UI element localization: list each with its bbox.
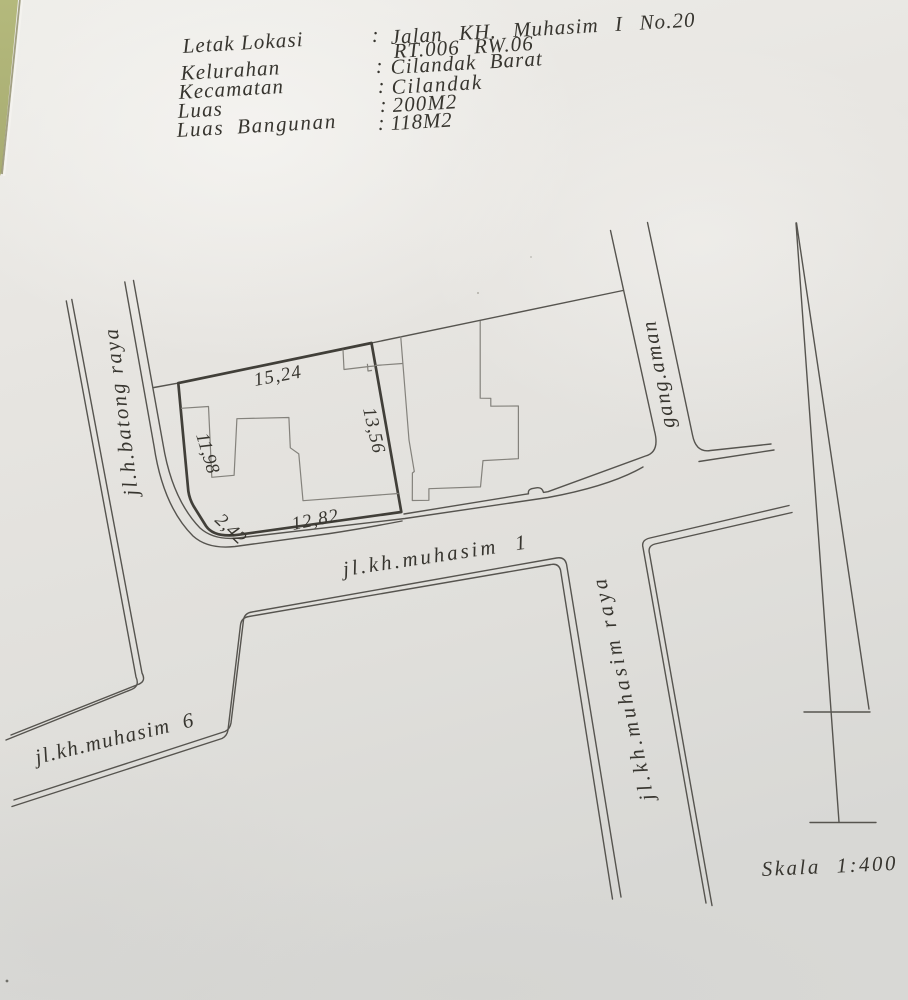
svg-text::: : — [371, 23, 380, 47]
svg-text:118M2: 118M2 — [390, 107, 453, 135]
svg-text::: : — [377, 111, 386, 135]
